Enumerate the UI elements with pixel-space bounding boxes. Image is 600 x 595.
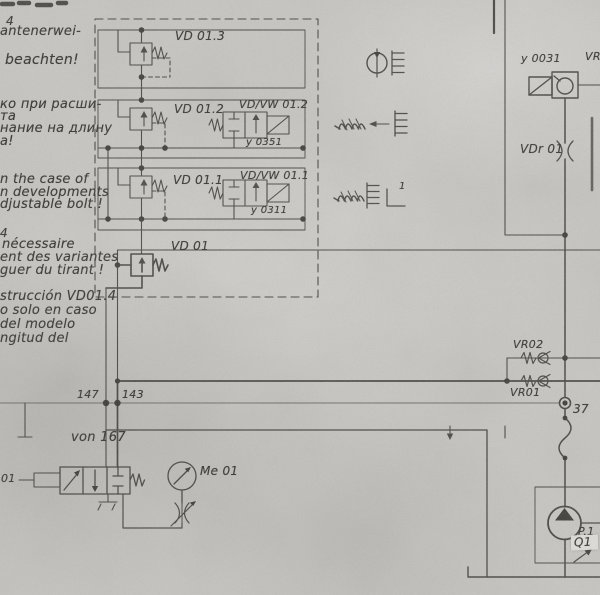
- legend-symbol-timer: [367, 49, 404, 77]
- pressure-gauge-me01: [168, 462, 196, 503]
- label-vd01: VD 01: [171, 239, 209, 253]
- scanned-hydraulic-schematic: 4 antenerwei- beachten! ко при расши- та…: [0, 0, 600, 595]
- label-vdr01: VDr 01: [520, 142, 563, 156]
- label-me01: Me 01: [200, 464, 238, 478]
- note-spanish-line: strucción VD01.4: [0, 289, 116, 304]
- label-q1: Q1: [571, 535, 598, 550]
- bottom-line: [468, 567, 600, 577]
- legend-symbol-terminal-1: [395, 111, 407, 136]
- note-spanish-line: o solo en caso: [0, 303, 97, 318]
- supply-line: [106, 430, 487, 577]
- scan-artifact-top-left: [2, 3, 66, 5]
- note-german-line: beachten!: [5, 52, 79, 68]
- hose-symbol: [559, 418, 571, 458]
- label-vr-partial: VR: [585, 50, 600, 63]
- throttle-me01: [123, 494, 196, 528]
- directional-valve-bottom: [60, 467, 145, 494]
- label-point37: 37: [573, 402, 589, 416]
- relief-valve-vd011: [118, 148, 167, 219]
- measuring-point-37: [560, 398, 571, 409]
- note-spanish-line: ngitud del: [0, 331, 69, 346]
- label-vr01: VR01: [510, 386, 540, 399]
- label-y0311: y 0311: [251, 205, 287, 216]
- label-vr02: VR02: [513, 338, 543, 351]
- note-english-line: djustable bolt !: [0, 197, 103, 212]
- note-spanish-line: del modelo: [0, 317, 75, 332]
- label-y0351: y 0351: [246, 137, 282, 148]
- line-continuation-left: [18, 403, 32, 437]
- note-russian-line: нание на длину: [0, 121, 112, 136]
- label-vd011: VD 01.1: [173, 173, 223, 187]
- relief-valve-vd013: [118, 30, 170, 100]
- label-superscript1: 1: [399, 181, 406, 192]
- tank-symbol: [98, 494, 117, 510]
- pilot-valve-y0031: [529, 72, 600, 98]
- q1-label-patch: Q1: [571, 535, 599, 551]
- label-left-cut: 01: [1, 472, 16, 485]
- legend-symbol-arrow: [369, 121, 389, 127]
- actuator: [19, 473, 60, 487]
- label-point143: 143: [122, 388, 144, 401]
- flow-arrow: [447, 426, 453, 440]
- note-russian-line: а!: [0, 134, 14, 149]
- legend-symbol-coil-2: [334, 191, 364, 202]
- relief-valve-vd012: [118, 100, 167, 148]
- legend-symbol-terminal-2: [367, 183, 379, 208]
- note-german-line: antenerwei-: [0, 24, 81, 39]
- label-von167: von 167: [71, 430, 126, 445]
- label-vdvw012: VD/VW 01.2: [239, 98, 308, 111]
- legend-symbol-coil-1: [335, 119, 365, 130]
- label-vd012: VD 01.2: [174, 102, 224, 116]
- label-y0031: y 0031: [521, 52, 561, 65]
- label-vd013: VD 01.3: [175, 29, 225, 43]
- branch-line-upper: [507, 358, 600, 381]
- note-french-line: guer du tirant !: [0, 263, 104, 278]
- label-vdvw011: VD/VW 01.1: [240, 169, 309, 182]
- label-point147: 147: [77, 388, 99, 401]
- vdr01-enclosure: [494, 0, 565, 235]
